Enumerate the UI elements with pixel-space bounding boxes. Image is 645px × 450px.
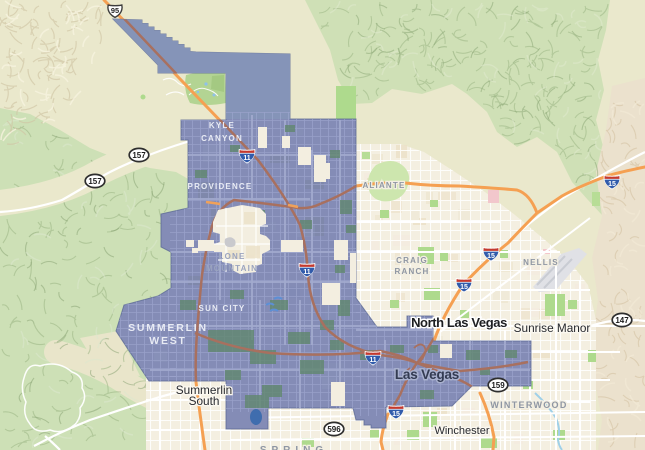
svg-text:159: 159 [491,381,505,390]
svg-text:11: 11 [369,357,376,364]
svg-text:NELLIS: NELLIS [523,258,559,267]
svg-text:CANYON: CANYON [201,134,243,143]
svg-text:WEST: WEST [149,335,187,347]
svg-text:LONE: LONE [218,252,245,261]
svg-text:157: 157 [132,151,146,160]
svg-text:Sunrise Manor: Sunrise Manor [514,321,591,335]
svg-text:WINTERWOOD: WINTERWOOD [490,400,567,410]
svg-text:KYLE: KYLE [209,121,235,130]
svg-text:ALIANTE: ALIANTE [362,181,405,190]
svg-text:SUN CITY: SUN CITY [199,304,246,313]
svg-text:South: South [189,394,220,408]
svg-text:15: 15 [392,411,400,418]
svg-text:11: 11 [243,155,250,162]
svg-text:11: 11 [303,269,310,276]
svg-text:MOUNTAIN: MOUNTAIN [206,264,258,273]
svg-text:RANCH: RANCH [395,267,430,276]
svg-text:15: 15 [608,181,616,188]
svg-text:Winchester: Winchester [434,425,489,437]
svg-text:95: 95 [111,6,119,15]
svg-text:Las Vegas: Las Vegas [395,367,459,382]
svg-text:15: 15 [487,253,495,260]
svg-text:PROVIDENCE: PROVIDENCE [188,182,253,191]
svg-text:CRAIG: CRAIG [396,256,428,265]
svg-text:SPRING: SPRING [260,445,328,450]
svg-text:SUMMERLIN: SUMMERLIN [128,322,208,334]
svg-text:147: 147 [615,316,629,325]
svg-text:596: 596 [327,425,341,434]
svg-text:North Las Vegas: North Las Vegas [411,315,507,330]
svg-text:15: 15 [460,284,468,291]
svg-text:157: 157 [88,177,102,186]
